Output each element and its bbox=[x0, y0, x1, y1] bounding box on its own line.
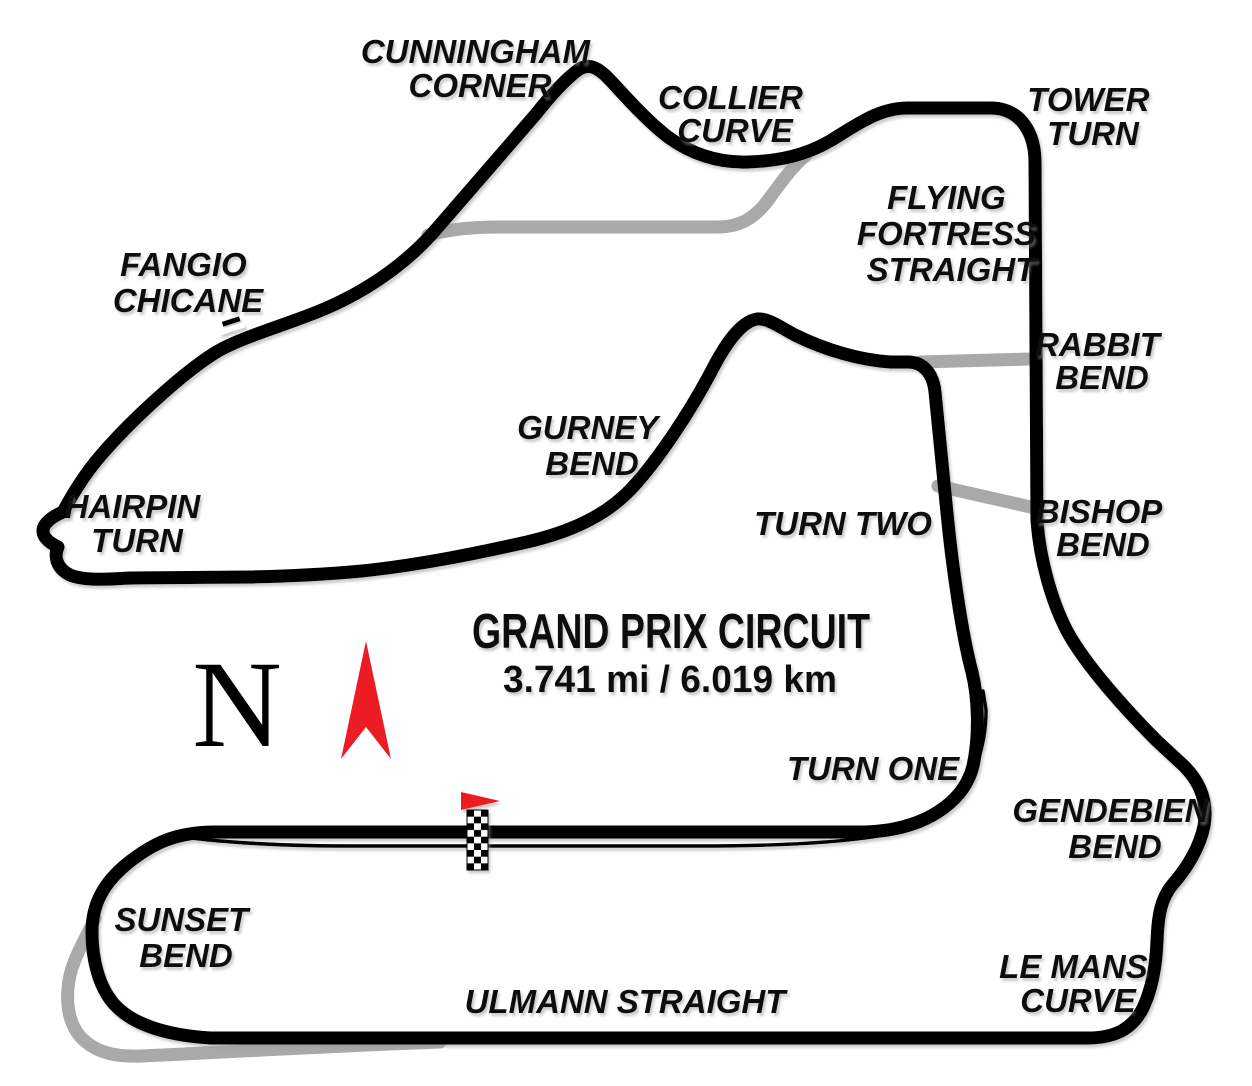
map-length: 3.741 mi / 6.019 km bbox=[503, 659, 837, 701]
label-turn-two: TURN TWO bbox=[754, 505, 932, 542]
label-ulmann-straight: ULMANN STRAIGHT bbox=[465, 983, 789, 1020]
label-le-mans-curve: LE MANS CURVE bbox=[999, 948, 1157, 1019]
circuit-map: N GRAND PRIX CIRCUIT 3.741 mi / 6.019 km… bbox=[0, 0, 1252, 1086]
label-turn-one: TURN ONE bbox=[787, 750, 960, 787]
label-fangio-chicane: FANGIO CHICANE bbox=[113, 246, 264, 319]
start-finish-checkered-line bbox=[467, 810, 488, 870]
map-title: GRAND PRIX CIRCUIT bbox=[472, 605, 870, 659]
title-block: GRAND PRIX CIRCUIT 3.741 mi / 6.019 km bbox=[472, 605, 870, 701]
track-map-svg: N GRAND PRIX CIRCUIT 3.741 mi / 6.019 km… bbox=[0, 0, 1252, 1086]
label-collier-curve: COLLIER CURVE bbox=[658, 79, 812, 149]
north-letter: N bbox=[192, 636, 282, 773]
alternate-rabbit-bend-connector bbox=[920, 359, 1031, 362]
